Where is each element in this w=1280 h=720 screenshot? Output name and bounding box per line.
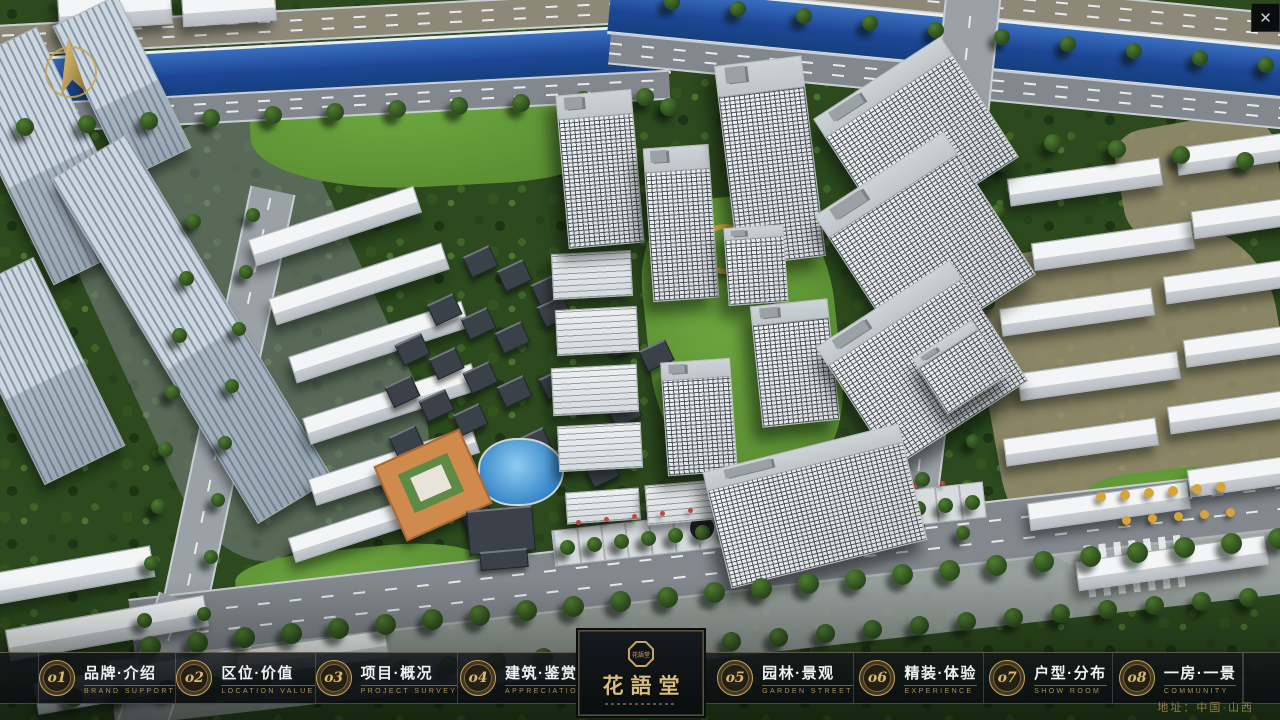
tree-shape: [957, 612, 976, 631]
nav-label-zh: 品牌·介绍: [84, 662, 157, 683]
tree-shape: [563, 596, 584, 617]
tree-shape: [966, 434, 980, 448]
tree-shape: [151, 499, 166, 514]
tree-shape: [232, 322, 246, 336]
tree-shape: [450, 97, 468, 115]
nav-badge-08: o8: [1119, 660, 1155, 696]
compass-north-icon: [42, 34, 100, 107]
tree-shape: [892, 564, 913, 585]
dot-shape: [940, 481, 945, 486]
tree-shape: [1051, 604, 1070, 623]
court-shape: [496, 259, 532, 292]
tree-shape: [197, 607, 211, 621]
dot-shape: [1096, 492, 1106, 502]
tree-shape: [660, 98, 678, 116]
logo-subtitle-rule: [605, 703, 677, 705]
tree-shape: [845, 569, 866, 590]
nav-spacer: [0, 653, 39, 703]
tree-shape: [512, 94, 530, 112]
project-logo-panel[interactable]: 花語堂 花語堂: [578, 630, 704, 716]
tree-shape: [816, 624, 835, 643]
tree-shape: [798, 573, 819, 594]
nav-label-zh: 精装·体验: [904, 662, 977, 683]
tree-shape: [986, 555, 1007, 576]
nav-label-en: EXPERIENCE: [904, 685, 977, 695]
tree-shape: [234, 627, 255, 648]
tree-shape: [1145, 596, 1164, 615]
nav-item-room-view[interactable]: o8 一房·一景 COMMUNITY: [1113, 653, 1243, 703]
dot-shape: [1122, 516, 1131, 525]
nav-label-zh: 项目·概况: [361, 662, 434, 683]
tree-shape: [1192, 592, 1211, 611]
nav-badge-03: o3: [316, 660, 352, 696]
tree-shape: [264, 106, 282, 124]
tree-shape: [1174, 537, 1195, 558]
dot-shape: [1216, 482, 1226, 492]
tree-shape: [1236, 152, 1254, 170]
tree-shape: [1192, 50, 1208, 66]
dot-shape: [1120, 490, 1130, 500]
tree-shape: [751, 578, 772, 599]
tree-shape: [796, 8, 812, 24]
tree-shape: [218, 436, 232, 450]
tree-shape: [928, 22, 944, 38]
nav-badge-01: o1: [39, 660, 75, 696]
tree-shape: [1060, 36, 1076, 52]
nav-label-en: GARDEN STREET: [762, 685, 853, 695]
tree-shape: [668, 528, 683, 543]
nav-item-project-survey[interactable]: o3 项目·概况 PROJECT SURVEY: [316, 653, 459, 703]
nav-label-en: APPRECIATION: [505, 685, 585, 695]
tree-shape: [636, 88, 654, 106]
tree-shape: [910, 616, 929, 635]
tree-shape: [137, 613, 152, 628]
tree-shape: [1004, 608, 1023, 627]
tree-shape: [375, 614, 396, 635]
tree-shape: [388, 100, 406, 118]
tree-shape: [1033, 551, 1054, 572]
tower-shape: [555, 89, 644, 249]
tree-shape: [722, 632, 741, 651]
dot-shape: [1174, 512, 1183, 521]
tree-shape: [187, 632, 208, 653]
mid-shape: [565, 487, 641, 524]
tree-shape: [239, 265, 253, 279]
dot-shape: [604, 517, 609, 522]
project-logo-title: 花語堂: [596, 670, 687, 700]
court-shape: [494, 321, 530, 354]
tree-shape: [225, 379, 239, 393]
nav-item-interior-experience[interactable]: o6 精装·体验 EXPERIENCE: [854, 653, 984, 703]
dot-shape: [632, 514, 637, 519]
mid-shape: [557, 422, 643, 472]
tree-shape: [1098, 600, 1117, 619]
tree-shape: [1127, 542, 1148, 563]
dot-shape: [1192, 484, 1202, 494]
tree-shape: [1239, 588, 1258, 607]
tree-shape: [657, 587, 678, 608]
tree-shape: [246, 208, 260, 222]
tree-shape: [610, 591, 631, 612]
dot-shape: [1144, 488, 1154, 498]
court-shape: [496, 375, 532, 408]
tower-shape: [643, 144, 720, 302]
tree-shape: [1044, 134, 1062, 152]
mid-shape: [551, 364, 639, 416]
tree-shape: [16, 118, 34, 136]
tree-shape: [211, 493, 225, 507]
tree-shape: [1108, 140, 1126, 158]
tree-shape: [915, 472, 930, 487]
dot-shape: [688, 508, 693, 513]
tree-shape: [172, 328, 187, 343]
nav-badge-05: o5: [717, 660, 753, 696]
mid-shape: [555, 306, 639, 356]
project-address: 地址：中国·山西: [1157, 699, 1254, 715]
nav-item-location-value[interactable]: o2 区位·价值 LOCATION VALUE: [176, 653, 315, 703]
tree-shape: [863, 620, 882, 639]
masterplan-view[interactable]: [0, 0, 1280, 720]
nav-label-zh: 户型·分布: [1034, 662, 1107, 683]
tree-shape: [641, 531, 656, 546]
tree-shape: [1221, 533, 1242, 554]
nav-label-en: COMMUNITY: [1164, 685, 1237, 695]
nav-spacer: [1243, 653, 1280, 703]
dot-shape: [660, 511, 665, 516]
tree-shape: [144, 556, 159, 571]
tree-shape: [469, 605, 490, 626]
tree-shape: [140, 112, 158, 130]
dot-shape: [1168, 486, 1178, 496]
tree-shape: [179, 271, 194, 286]
presentation-window: ✕ o1 品牌·介绍 BRAND SUPPORT o2 区位·价值 LOCATI…: [0, 0, 1280, 720]
tree-shape: [422, 609, 443, 630]
tree-shape: [587, 537, 602, 552]
nav-item-floorplan[interactable]: o7 户型·分布 SHOW ROOM: [984, 653, 1114, 703]
tree-shape: [281, 623, 302, 644]
tree-shape: [994, 29, 1010, 45]
tree-shape: [956, 526, 970, 540]
nav-item-architecture[interactable]: o4 建筑·鉴赏 APPRECIATION: [458, 653, 588, 703]
nav-label-zh: 区位·价值: [221, 662, 294, 683]
tree-shape: [1172, 146, 1190, 164]
dot-shape: [1148, 514, 1157, 523]
tree-shape: [704, 582, 725, 603]
tree-shape: [516, 600, 537, 621]
tree-shape: [202, 109, 220, 127]
tower-shape: [660, 358, 738, 477]
nav-label-en: PROJECT SURVEY: [361, 685, 458, 695]
tree-shape: [1258, 57, 1274, 73]
close-button[interactable]: ✕: [1251, 3, 1280, 32]
tree-shape: [695, 525, 710, 540]
dot-shape: [576, 520, 581, 525]
nav-badge-07: o7: [989, 660, 1025, 696]
nav-label-en: SHOW ROOM: [1034, 685, 1107, 695]
dot-shape: [1200, 510, 1209, 519]
tree-shape: [1080, 546, 1101, 567]
tree-shape: [862, 15, 878, 31]
nav-badge-06: o6: [859, 660, 895, 696]
dot-shape: [1226, 508, 1235, 517]
nav-badge-02: o2: [176, 660, 212, 696]
tree-shape: [965, 495, 980, 510]
tree-shape: [186, 214, 201, 229]
nav-label-en: LOCATION VALUE: [221, 685, 314, 695]
nav-item-brand-intro[interactable]: o1 品牌·介绍 BRAND SUPPORT: [39, 653, 176, 703]
nav-badge-04: o4: [460, 660, 496, 696]
tree-shape: [204, 550, 218, 564]
tree-shape: [78, 115, 96, 133]
tree-shape: [328, 618, 349, 639]
seal-emblem-icon: 花語堂: [628, 641, 654, 667]
pool-shape: [478, 438, 564, 506]
nav-label-zh: 园林·景观: [762, 662, 835, 683]
tree-shape: [1126, 43, 1142, 59]
nav-label-zh: 一房·一景: [1164, 662, 1237, 683]
nav-item-garden-landscape[interactable]: o5 园林·景观 GARDEN STREET: [717, 653, 854, 703]
tree-shape: [614, 534, 629, 549]
tree-shape: [938, 498, 953, 513]
tree-shape: [560, 540, 575, 555]
tree-shape: [769, 628, 788, 647]
tree-shape: [165, 385, 180, 400]
tree-shape: [158, 442, 173, 457]
nav-label-en: BRAND SUPPORT: [84, 685, 175, 695]
mid-shape: [551, 250, 633, 300]
nav-label-zh: 建筑·鉴赏: [505, 662, 578, 683]
court-shape: [462, 245, 498, 278]
tower-shape: [723, 224, 788, 306]
court-shape: [460, 307, 496, 340]
tree-shape: [939, 560, 960, 581]
tree-shape: [730, 1, 746, 17]
tree-shape: [326, 103, 344, 121]
